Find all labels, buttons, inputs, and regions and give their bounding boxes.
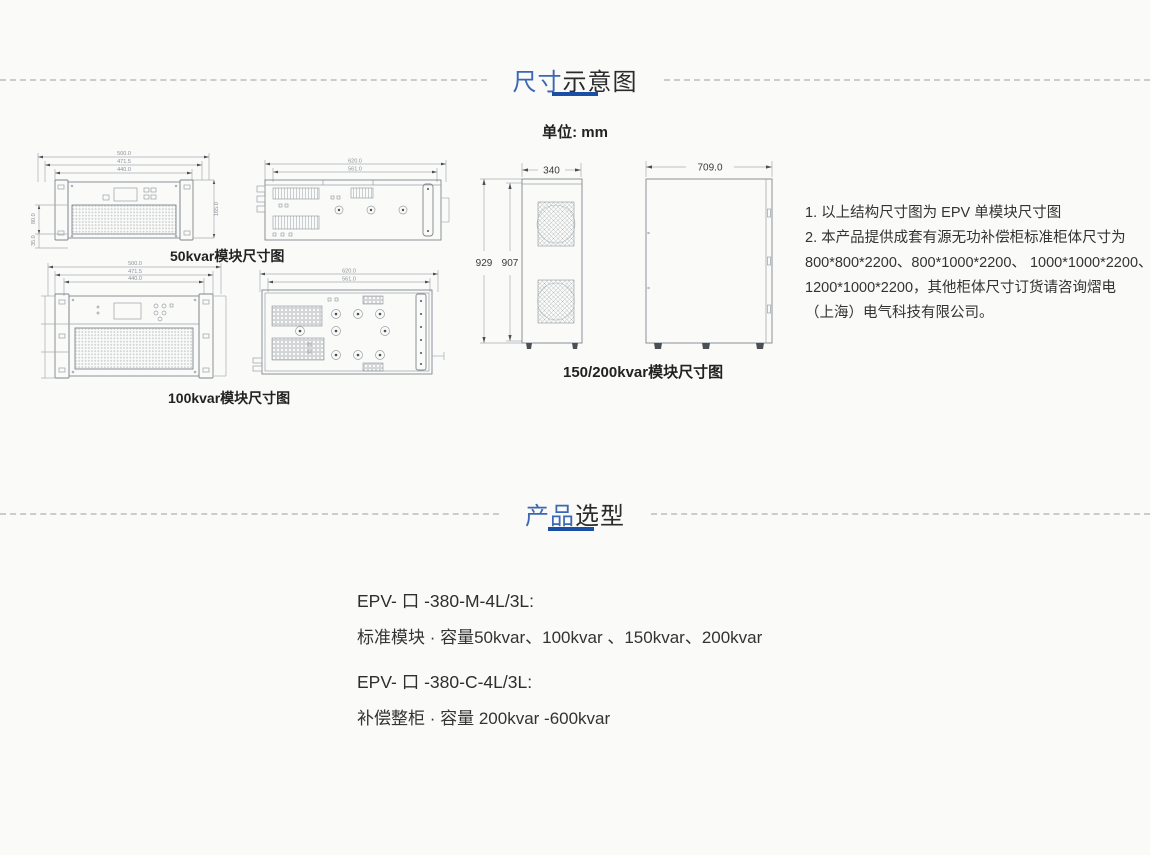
dim-label: 620.0 [348, 159, 362, 165]
dim-label: 440.0 [117, 167, 131, 173]
section-title-selection: 产品选型 [525, 496, 625, 531]
drawing-100kvar-top: 620.0 561.0 [248, 268, 448, 382]
dim-label: 340 [543, 166, 560, 177]
title-underline [552, 92, 598, 96]
product-model: EPV- 口 -380-M-4L/3L: [357, 590, 762, 612]
title-underline [548, 527, 594, 531]
drawing-150kvar-side: 709.0 [626, 153, 786, 355]
product-selection-block: EPV- 口 -380-M-4L/3L: 标准模块 · 容量50kvar、100… [357, 590, 762, 752]
unit-label: 单位: mm [0, 121, 1150, 142]
drawing-100kvar-front: 500.0 471.5 440.0 [36, 260, 241, 388]
dim-label: 80.0 [31, 213, 37, 224]
product-description: 补偿整柜 · 容量 200kvar -600kvar [357, 708, 762, 730]
product-model: EPV- 口 -380-C-4L/3L: [357, 671, 762, 693]
dim-label: 471.5 [117, 159, 131, 165]
section-title-rest: 选型 [575, 503, 625, 530]
label-100kvar-module: 100kvar模块尺寸图 [168, 388, 290, 408]
note-line: （上海）电气科技有限公司。 [805, 301, 1150, 326]
dim-label: 561.0 [348, 167, 362, 173]
drawing-50kvar-side: 620.0 561.0 [253, 158, 461, 248]
section-header-selection: 产品选型 [0, 496, 1150, 531]
dim-label: 929 [476, 258, 493, 269]
dashed-divider-right [651, 513, 1150, 515]
product-description: 标准模块 · 容量50kvar、100kvar 、150kvar、200kvar [357, 627, 762, 649]
dashed-divider-left [0, 79, 487, 81]
dim-label: 440.0 [128, 276, 142, 282]
dashed-divider-left [0, 513, 499, 515]
drawing-150kvar-front: 340 929 907 [468, 153, 593, 355]
dim-label: 471.5 [128, 269, 142, 275]
note-line: 1200*1000*2200，其他柜体尺寸订货请咨询熠电 [805, 276, 1150, 301]
dim-label: 709.0 [697, 163, 722, 174]
notes-block: 1. 以上结构尺寸图为 EPV 单模块尺寸图 2. 本产品提供成套有源无功补偿柜… [805, 201, 1150, 326]
dim-label: 907 [502, 258, 519, 269]
note-line: 2. 本产品提供成套有源无功补偿柜标准柜体尺寸为 [805, 226, 1150, 251]
dim-label: 35.0 [31, 235, 37, 246]
label-150kvar-module: 150/200kvar模块尺寸图 [563, 361, 723, 382]
dim-label: 500.0 [128, 261, 142, 267]
dim-label: 500.0 [117, 151, 131, 157]
drawing-50kvar-front: 500.0 471.5 440.0 80.0 35.0 165.0 [30, 150, 222, 252]
note-line: 1. 以上结构尺寸图为 EPV 单模块尺寸图 [805, 201, 1150, 226]
dim-label: 165.0 [214, 202, 220, 216]
dim-label: 620.0 [342, 269, 356, 275]
section-title-highlight: 产品 [525, 503, 575, 530]
note-line: 800*800*2200、800*1000*2200、 1000*1000*22… [805, 251, 1150, 276]
dim-label: 561.0 [342, 277, 356, 283]
dashed-divider-right [664, 79, 1150, 81]
